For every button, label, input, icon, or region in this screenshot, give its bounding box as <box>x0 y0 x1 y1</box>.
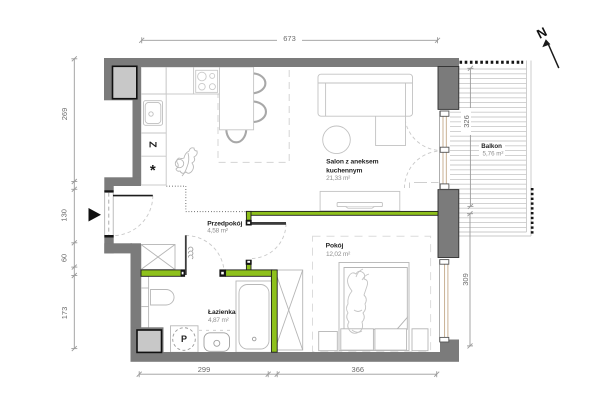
svg-text:5,76 m²: 5,76 m² <box>483 151 504 158</box>
svg-text:kuchennym: kuchennym <box>326 168 362 175</box>
svg-text:673: 673 <box>283 34 296 43</box>
svg-text:Z: Z <box>146 141 158 148</box>
svg-text:326: 326 <box>462 115 471 128</box>
svg-text:P: P <box>181 334 187 344</box>
svg-text:4,58 m²: 4,58 m² <box>207 227 229 234</box>
svg-text:21,33 m²: 21,33 m² <box>326 175 351 182</box>
svg-text:Salon z aneksem: Salon z aneksem <box>326 159 379 166</box>
svg-text:12,02 m²: 12,02 m² <box>326 251 351 258</box>
svg-text:309: 309 <box>461 273 470 286</box>
svg-text:60: 60 <box>60 254 69 262</box>
svg-text:130: 130 <box>60 209 69 222</box>
svg-text:Pokój: Pokój <box>326 243 344 250</box>
svg-text:299: 299 <box>198 365 211 374</box>
svg-text:Balkon: Balkon <box>481 143 502 150</box>
svg-text:4,87 m²: 4,87 m² <box>208 317 230 324</box>
svg-text:173: 173 <box>60 307 69 320</box>
svg-text:Łazienka: Łazienka <box>208 309 236 316</box>
svg-text:*: * <box>150 162 156 179</box>
svg-text:269: 269 <box>60 108 69 121</box>
svg-text:366: 366 <box>352 365 365 374</box>
